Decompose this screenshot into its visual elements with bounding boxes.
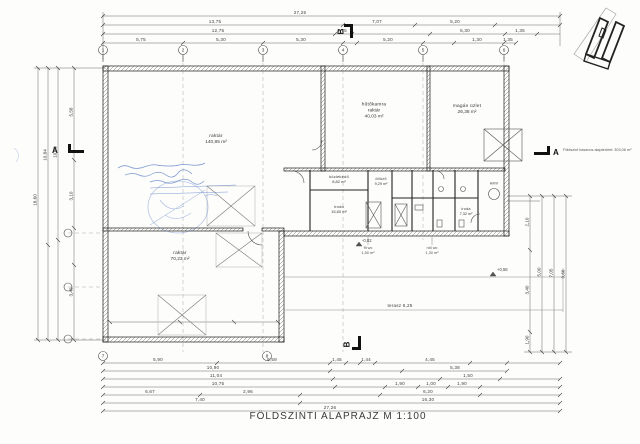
dim-label: 2,96 xyxy=(243,389,253,394)
room-label-shop: magán üzlet26,38 m² xyxy=(453,104,481,116)
doors-and-fixtures xyxy=(248,140,500,245)
dim-label: 5,90 xyxy=(153,357,163,362)
room-label-locker: öltöző9,29 m² xyxy=(375,177,388,187)
grid-bubble-label: 1 xyxy=(102,48,105,53)
grid-bubble-label: 2 xyxy=(182,48,185,53)
exterior-walls xyxy=(103,66,509,342)
dim-label: 1,50 xyxy=(463,373,473,378)
grid-bubble-label: 6 xyxy=(503,48,506,53)
dim-label: 7,07 xyxy=(372,19,382,24)
dim-label: 1,44 xyxy=(361,357,371,362)
room-label-hmv: HMV xyxy=(490,182,499,187)
dim-label: 16,30 xyxy=(422,397,435,402)
dim-label: 5,30 xyxy=(460,28,470,33)
dim-label: 5,75 xyxy=(136,37,146,42)
dim-label: 10,90 xyxy=(207,365,220,370)
section-marker-b-bottom: B xyxy=(342,342,351,348)
dim-label: 6,67 xyxy=(145,389,155,394)
dim-label: 10,75 xyxy=(212,381,225,386)
dim-label: 1,00 xyxy=(426,381,436,386)
dim-label: 11,04 xyxy=(210,373,222,378)
dim-label: 1,35 xyxy=(503,37,513,42)
floor-plan-sheet: 27,25 13,75 7,07 5,20 12,75 1,75 5,30 1,… xyxy=(0,0,640,444)
dim-label: 5,00 xyxy=(537,268,542,277)
plan-title: FÖLDSZINTI ALAPRAJZ M 1:100 xyxy=(249,411,426,422)
elevation-label: +0,58 xyxy=(497,267,508,272)
dim-label: 4,45 xyxy=(425,357,435,362)
dim-label: 2,10 xyxy=(525,218,530,227)
room-label-cold-store: hűtőkamraraktár40,03 m² xyxy=(362,103,386,122)
dim-label: 1,90 xyxy=(457,381,467,386)
room-label-hall: raktár140,85 m² xyxy=(205,134,227,146)
dim-label: 6,20 xyxy=(423,389,433,394)
terrace-lines xyxy=(284,237,563,312)
dimension-ticks xyxy=(36,14,568,413)
dim-label: 27,26 xyxy=(324,405,337,410)
room-label-store2: raktár70,23 m² xyxy=(171,251,190,263)
section-marker-a-left: A xyxy=(52,146,58,155)
grid-axis-lines xyxy=(68,56,504,352)
dim-label: 5,38 xyxy=(450,365,460,370)
room-label-corridor: közlekedő8,82 m² xyxy=(329,174,349,184)
dim-label: 13,75 xyxy=(209,19,222,24)
dim-label: 12,75 xyxy=(212,28,225,33)
dim-label: 5,20 xyxy=(450,19,460,24)
dim-label: 5,20 xyxy=(383,37,393,42)
dim-label: 1,45 xyxy=(332,357,342,362)
grid-bubble-label: 8 xyxy=(266,354,269,359)
elevation-label: -0,02 xyxy=(362,238,372,243)
dim-label: 1,90 xyxy=(395,381,405,386)
grid-bubble-label: 4 xyxy=(342,48,345,53)
dim-label: 10,84 xyxy=(43,149,48,161)
approval-stamp xyxy=(14,148,236,233)
dim-label: 1,90 xyxy=(525,336,530,345)
dim-label: 18,60 xyxy=(33,194,38,206)
dim-label: 5,30 xyxy=(296,37,306,42)
dim-label: 7,40 xyxy=(195,397,205,402)
dimension-lines xyxy=(34,12,572,411)
section-marker-b-top: B xyxy=(336,29,345,35)
terrace-label: terasz 6,25 xyxy=(388,303,413,308)
grid-bubble-label: 3 xyxy=(262,48,265,53)
key-plan xyxy=(574,8,624,69)
dim-label: 7,05 xyxy=(549,269,554,278)
dim-label: 3,40 xyxy=(69,288,74,297)
grid-bubble-label: 5 xyxy=(422,48,425,53)
dim-label: 9,66 xyxy=(561,270,566,279)
area-note: Földszint hasznos alapterület: 303,06 m² xyxy=(563,148,639,152)
dim-label: 27,25 xyxy=(294,10,307,15)
annotation-wc-men: ffi wc1,50 m² xyxy=(361,246,374,256)
dim-label: 3,10 xyxy=(69,192,74,201)
annotation-wc-women: női wc1,30 m² xyxy=(425,246,438,256)
dim-label: 5,30 xyxy=(216,37,226,42)
dim-label: 1,35 xyxy=(515,28,525,33)
dim-label: 3,40 xyxy=(525,286,530,295)
floor-plan-drawing xyxy=(0,0,640,444)
grid-bubble-label: 7 xyxy=(102,354,105,359)
section-marker-a-right: A xyxy=(553,148,559,157)
dim-label: 5,58 xyxy=(69,108,74,117)
dim-label: 1,30 xyxy=(472,37,482,42)
room-label-office: iroda15,60 m² xyxy=(331,204,347,214)
room-label-office2: iroda7,32 m² xyxy=(460,207,473,217)
grid-bubbles xyxy=(64,46,509,361)
